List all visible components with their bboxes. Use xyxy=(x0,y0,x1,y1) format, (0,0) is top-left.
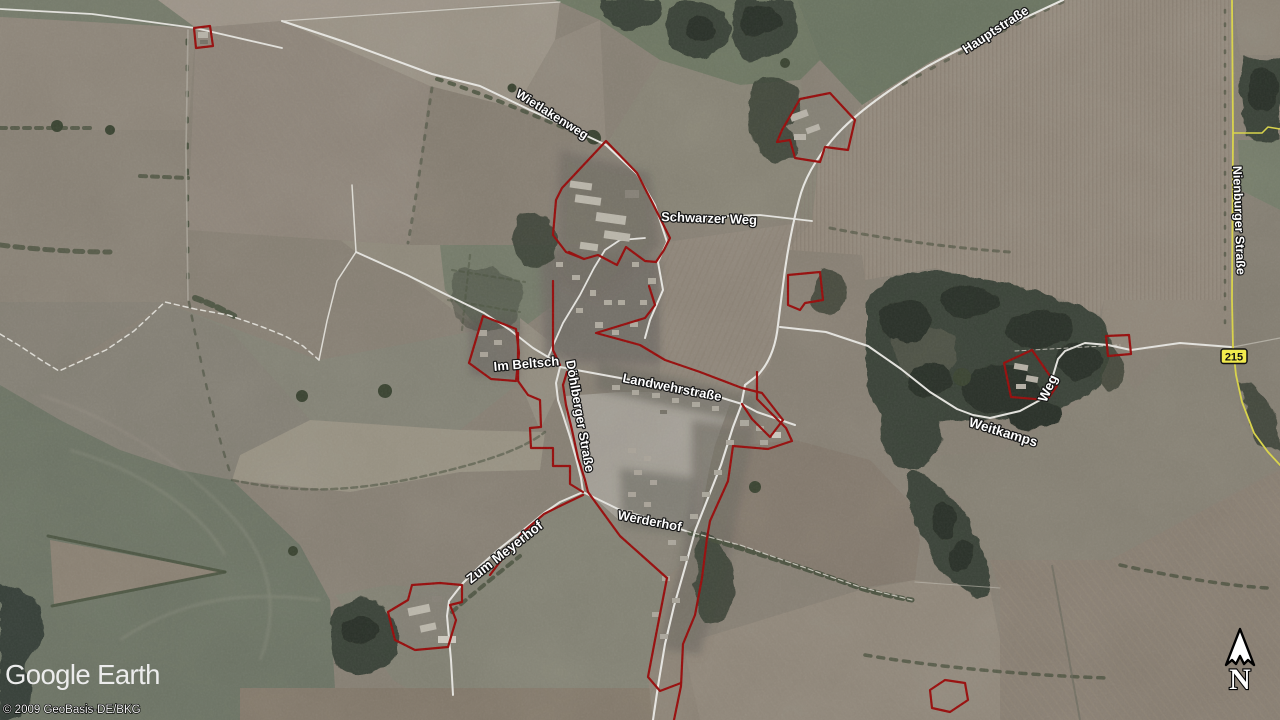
svg-text:215: 215 xyxy=(1225,352,1243,364)
svg-text:© 2009 GeoBasis-DE/BKG: © 2009 GeoBasis-DE/BKG xyxy=(3,704,141,716)
svg-text:Google Earth: Google Earth xyxy=(5,659,160,690)
svg-text:N: N xyxy=(1229,663,1251,696)
